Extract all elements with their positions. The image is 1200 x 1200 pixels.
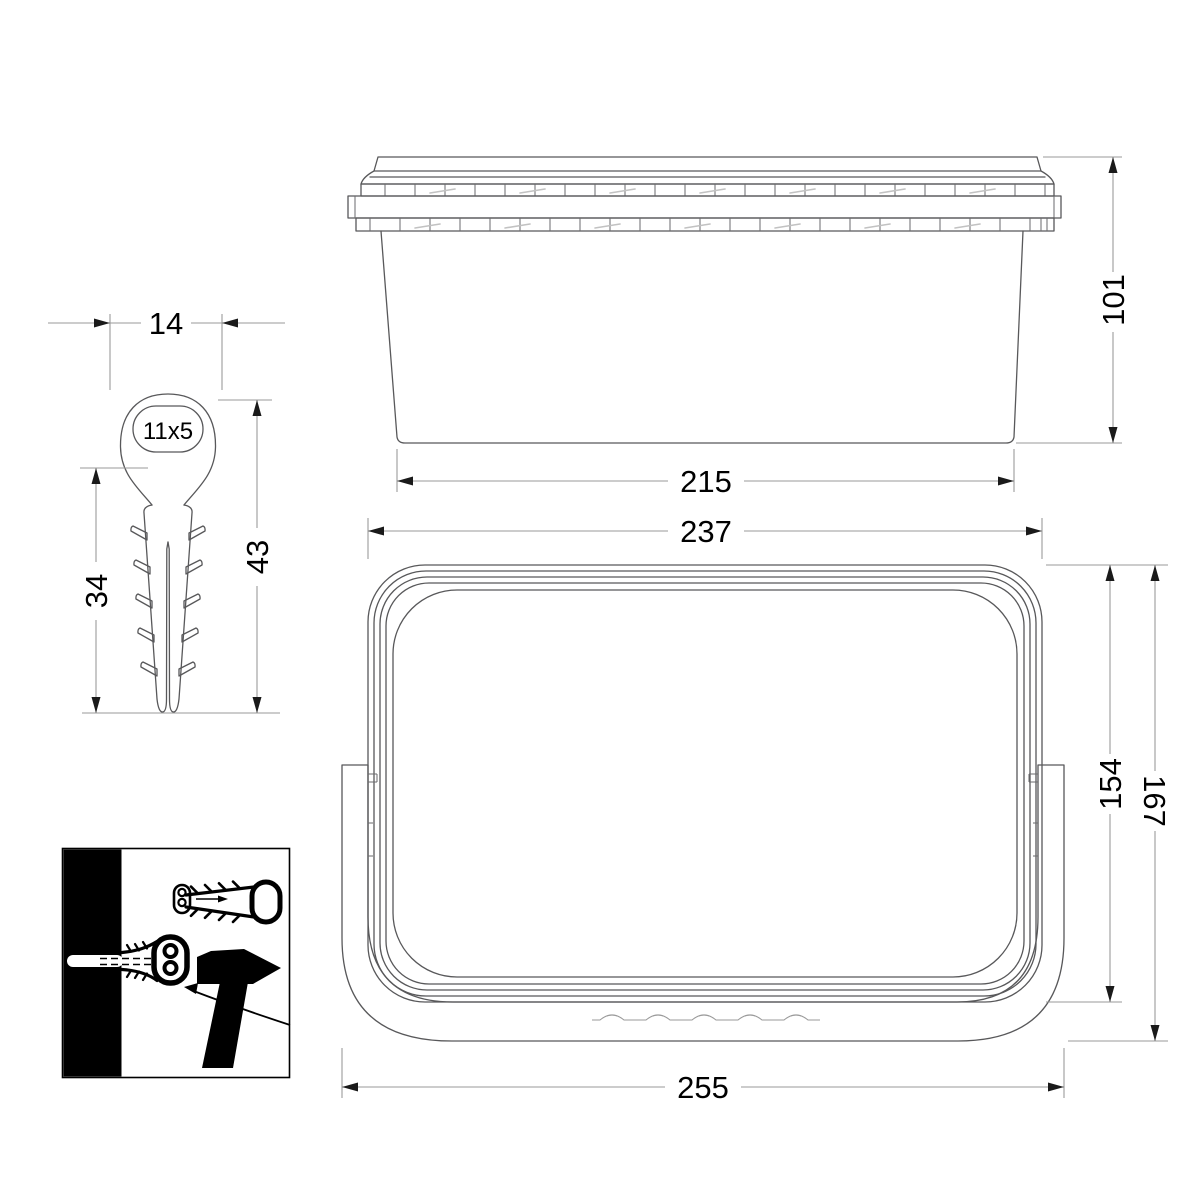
dim-side-width: 215: [397, 449, 1014, 499]
dim-label-plan-overall-width: 255: [677, 1070, 729, 1105]
dim-label-plug-head-width: 14: [149, 306, 183, 341]
arrowhead-154-top: [1106, 565, 1115, 581]
swing-arrow-head: [184, 983, 198, 994]
plug-inserted-hole-top: [165, 945, 177, 957]
dim-label-plan-lid-depth: 154: [1093, 758, 1128, 810]
dim-label-plan-lid-width: 237: [680, 514, 732, 549]
arrowhead-14-left: [94, 319, 110, 328]
hammer-icon: [184, 949, 290, 1068]
drawing-svg: 101 215: [0, 0, 1200, 1200]
hammer-head: [197, 949, 281, 984]
arrowhead-154-bottom: [1106, 986, 1115, 1002]
dim-label-side-height: 101: [1096, 274, 1131, 326]
plug-side-head-ring: [252, 882, 280, 922]
arrowhead-43-top: [253, 400, 262, 416]
lid-tamper-band-upper: [361, 184, 1054, 196]
plug-outline: 11x5: [120, 394, 215, 712]
lid-rim-flange-steps: [355, 196, 1054, 218]
plug-front-hole-top: [178, 889, 185, 896]
dim-side-height: 101: [1016, 157, 1131, 443]
arrowhead-215-left: [397, 477, 413, 486]
handle-hinge-left: [368, 774, 377, 856]
lid-molding: [361, 171, 1054, 184]
lid-outline-3: [380, 577, 1030, 990]
arrowhead-101-top: [1109, 157, 1118, 173]
arrowhead-43-bottom: [253, 697, 262, 713]
lid-rim-flange: [348, 196, 1061, 218]
plug-barbs-right: [179, 526, 205, 676]
handle-grip-wave: [592, 1015, 820, 1020]
lid-top-cap: [374, 157, 1041, 171]
dim-label-plug-shank-length: 34: [79, 574, 114, 608]
container-body-profile: [381, 231, 1023, 443]
lid-outline-1: [368, 565, 1042, 1002]
arrowhead-34-bottom: [92, 697, 101, 713]
lid-slits-upper: [430, 189, 995, 193]
plan-view: 237 255 154 167: [342, 514, 1172, 1105]
side-view-body: [381, 231, 1023, 443]
plug-side-icon: [174, 882, 280, 922]
plug-barbs-left: [131, 526, 157, 676]
lid-outline-inner-opening: [393, 590, 1017, 977]
arrowhead-167-bottom: [1151, 1025, 1160, 1041]
dim-label-plug-overall-length: 43: [240, 540, 275, 574]
arrowhead-167-top: [1151, 565, 1160, 581]
dim-label-side-width: 215: [680, 464, 732, 499]
arrowhead-237-right: [1026, 527, 1042, 536]
lid-outline-4: [386, 583, 1024, 984]
plug-hole-label: 11x5: [143, 418, 193, 445]
hammer-handle: [202, 982, 248, 1068]
arrowhead-255-left: [342, 1083, 358, 1092]
plan-view-lid-outlines: [368, 565, 1042, 1002]
arrowhead-237-left: [368, 527, 384, 536]
arrowhead-34-top: [92, 468, 101, 484]
arrowhead-101-bottom: [1109, 427, 1118, 443]
plug-front-hole-bottom: [178, 899, 185, 906]
lid-slits-lower: [415, 224, 980, 228]
handle-band: [342, 765, 1064, 1041]
side-view-lid: [348, 157, 1061, 231]
lid-outline-2: [374, 571, 1036, 996]
arrowhead-255-right: [1048, 1083, 1064, 1092]
arrowhead-215-right: [998, 477, 1014, 486]
side-view: 101 215: [348, 157, 1131, 499]
dim-plug-head-width: 14: [48, 306, 285, 390]
insert-arrow-head-icon: [218, 896, 228, 903]
technical-drawing-sheet: 101 215: [0, 0, 1200, 1200]
arrowhead-14-right: [222, 319, 238, 328]
plug-head-outer: [120, 394, 215, 505]
plug-detail-view: 11x5 14 34: [48, 306, 285, 713]
plan-view-handle: [342, 765, 1064, 1041]
dim-plan-lid-width: 237: [368, 514, 1042, 559]
install-pictogram: [63, 849, 291, 1078]
dim-plug-overall-length: 43: [218, 400, 275, 713]
plug-side-barbs: [191, 882, 240, 922]
plug-inserted-hole-bottom: [165, 962, 177, 974]
dim-label-plan-overall-depth: 167: [1137, 775, 1172, 827]
dim-plan-overall-width: 255: [342, 1048, 1064, 1105]
